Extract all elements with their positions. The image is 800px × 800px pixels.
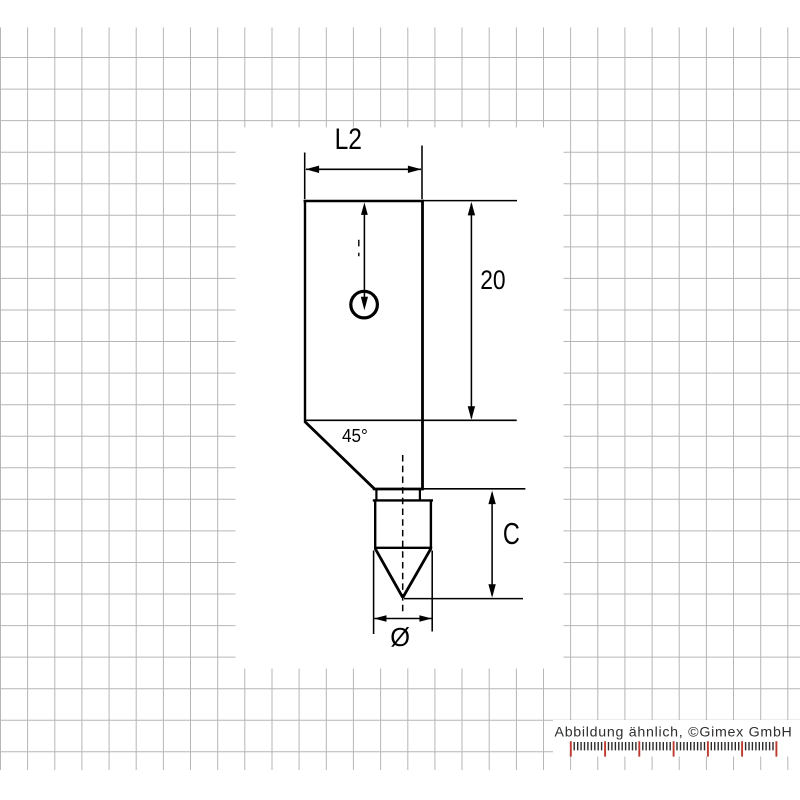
svg-text:45°: 45° [342, 425, 368, 446]
svg-text:20: 20 [480, 265, 505, 295]
svg-text:Ø: Ø [390, 622, 410, 652]
svg-text:C: C [503, 517, 520, 551]
svg-text:L2: L2 [335, 123, 362, 156]
svg-text:Abbildung ähnlich, ©Gimex GmbH: Abbildung ähnlich, ©Gimex GmbH [555, 724, 792, 740]
